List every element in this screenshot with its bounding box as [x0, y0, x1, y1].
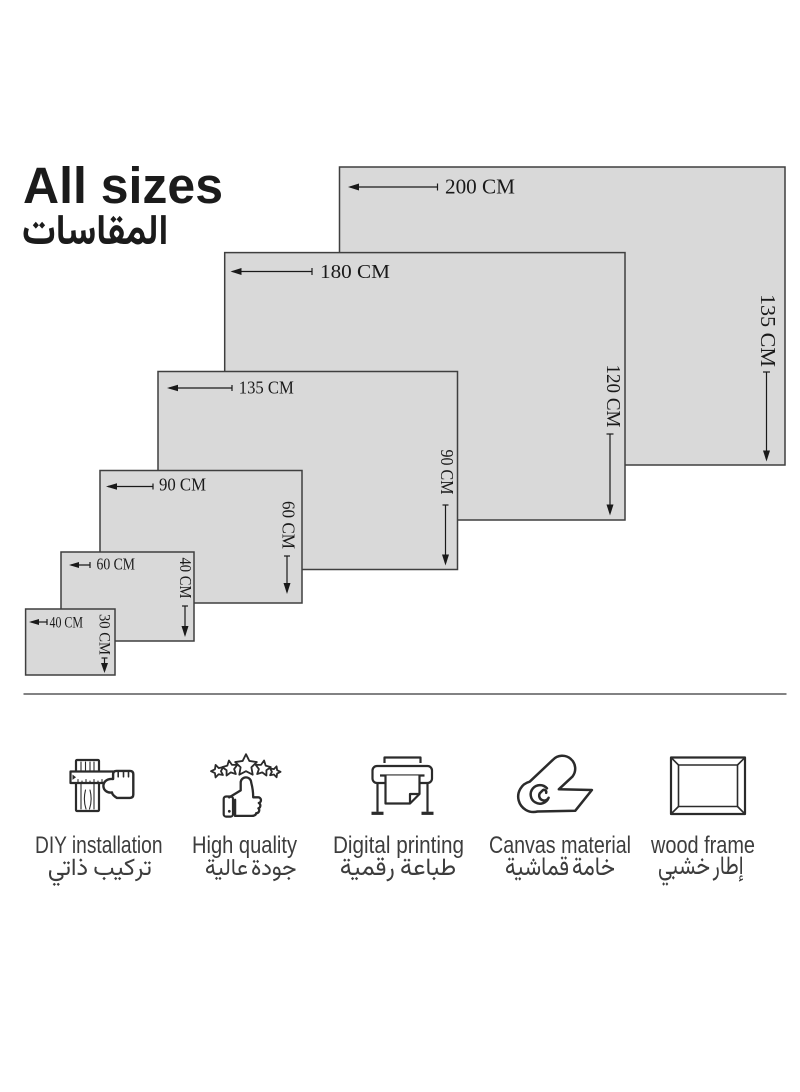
- svg-text:wood frame: wood frame: [650, 832, 755, 859]
- svg-text:DIY installation: DIY installation: [35, 832, 163, 859]
- svg-text:90 CM: 90 CM: [437, 450, 457, 495]
- svg-text:40 CM: 40 CM: [176, 558, 195, 599]
- svg-text:Canvas material: Canvas material: [489, 832, 631, 859]
- svg-text:135 CM: 135 CM: [756, 294, 780, 367]
- svg-text:135 CM: 135 CM: [239, 378, 294, 398]
- svg-text:High quality: High quality: [192, 832, 297, 859]
- svg-text:90 CM: 90 CM: [159, 475, 206, 495]
- svg-text:180 CM: 180 CM: [320, 261, 390, 283]
- svg-text:200 CM: 200 CM: [445, 175, 515, 199]
- svg-text:30 CM: 30 CM: [96, 614, 113, 655]
- svg-text:60 CM: 60 CM: [97, 555, 136, 574]
- svg-text:120 CM: 120 CM: [602, 365, 624, 428]
- svg-text:60 CM: 60 CM: [278, 501, 298, 549]
- svg-text:Digital printing: Digital printing: [333, 832, 464, 859]
- svg-text:40 CM: 40 CM: [50, 615, 84, 632]
- svg-text:All sizes: All sizes: [23, 157, 223, 214]
